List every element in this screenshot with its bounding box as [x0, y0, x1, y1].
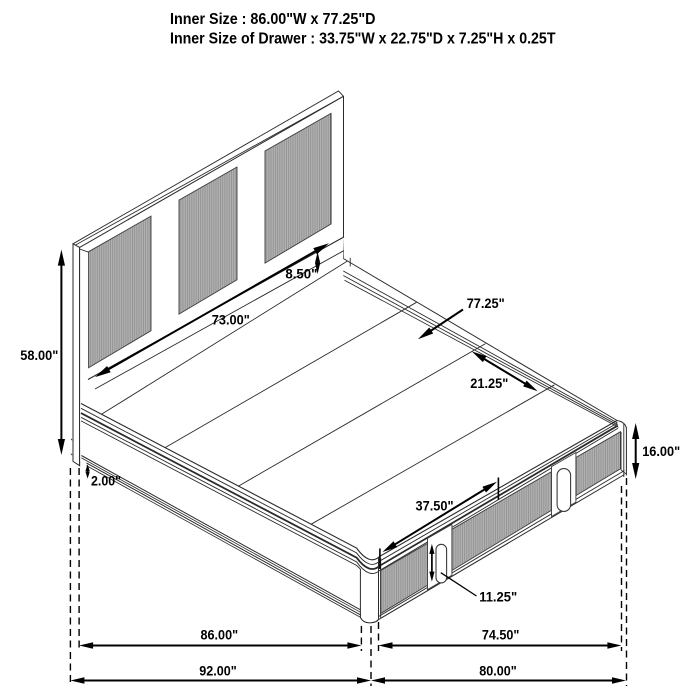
- svg-text:8.50": 8.50": [285, 267, 317, 283]
- svg-text:58.00": 58.00": [20, 348, 58, 364]
- svg-text:Inner Size of Drawer : 33.75"W: Inner Size of Drawer : 33.75"W x 22.75"D…: [170, 31, 556, 48]
- svg-text:16.00": 16.00": [642, 444, 680, 460]
- svg-text:2.00": 2.00": [91, 474, 121, 490]
- svg-text:21.25": 21.25": [470, 376, 508, 392]
- svg-text:37.50": 37.50": [416, 499, 454, 515]
- svg-text:80.00": 80.00": [479, 664, 517, 680]
- svg-text:77.25": 77.25": [467, 296, 505, 312]
- svg-text:86.00": 86.00": [201, 628, 239, 644]
- svg-text:74.50": 74.50": [482, 628, 520, 644]
- svg-text:11.25": 11.25": [479, 590, 517, 606]
- svg-text:Inner Size : 86.00"W x 77.25"D: Inner Size : 86.00"W x 77.25"D: [170, 11, 376, 28]
- svg-text:73.00": 73.00": [212, 313, 250, 329]
- svg-text:92.00": 92.00": [199, 664, 237, 680]
